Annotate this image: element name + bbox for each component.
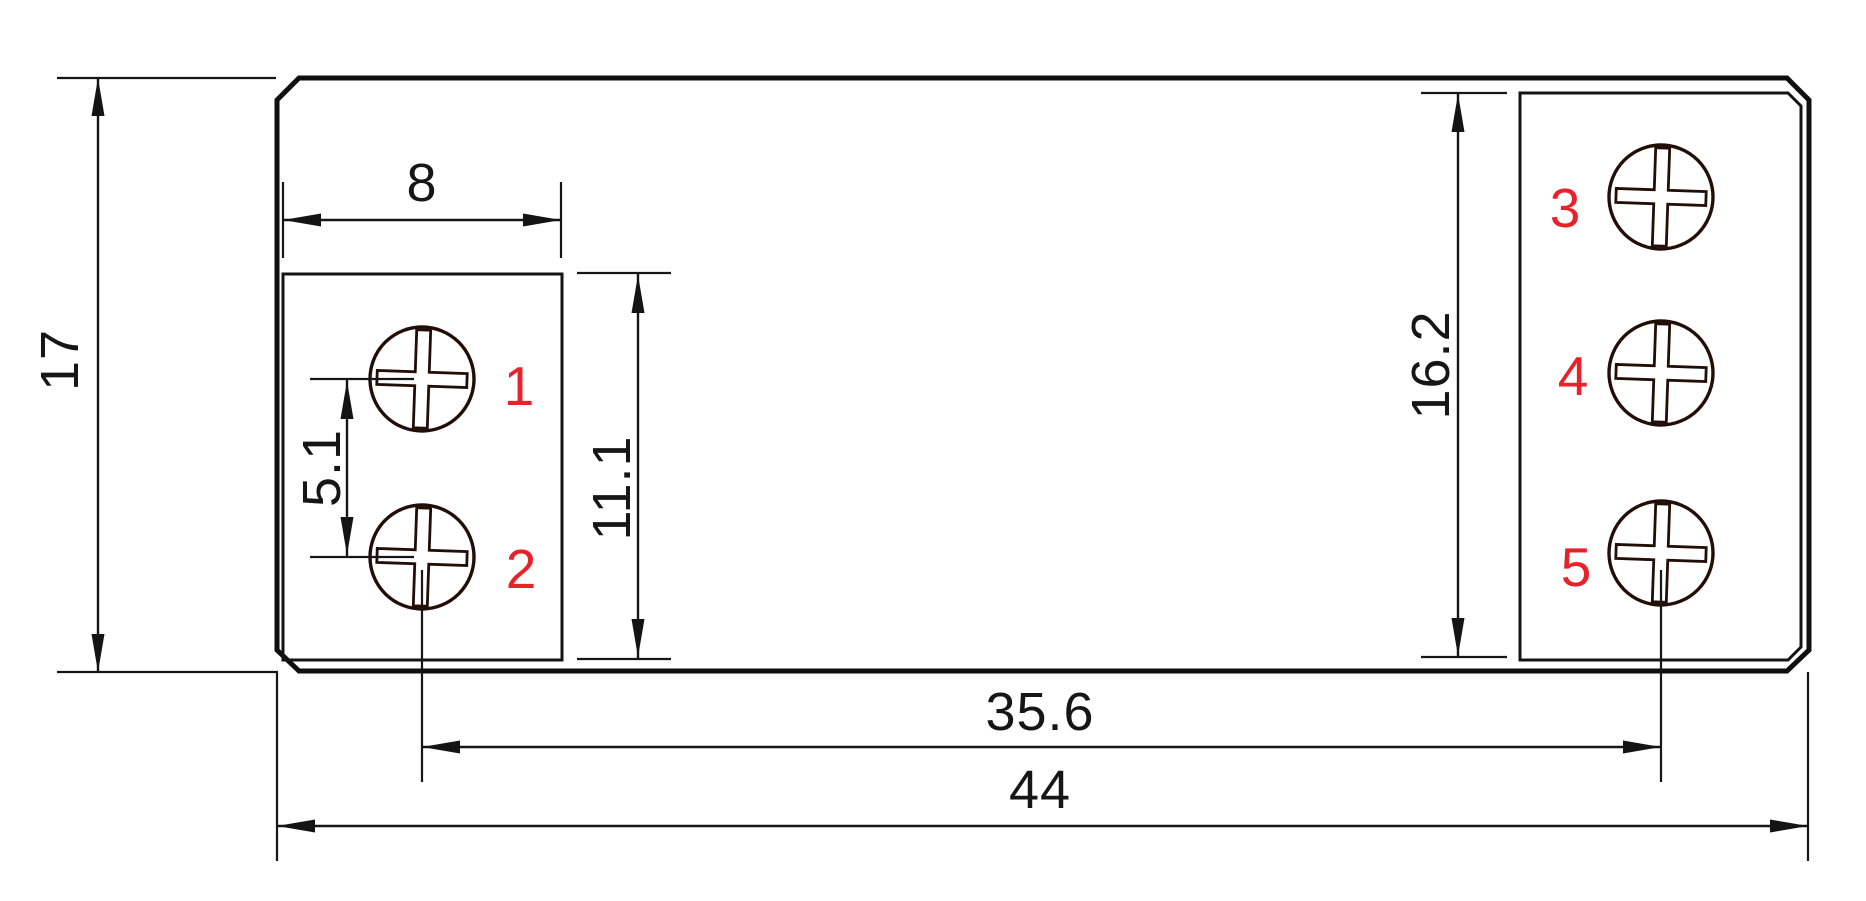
- screws: [370, 145, 1713, 609]
- dim162-arrow-top: [1452, 94, 1465, 132]
- dim51-arrow-top: [341, 381, 354, 419]
- dim51-arrow-bottom: [341, 517, 354, 555]
- dim17-arrow-bottom: [92, 634, 105, 672]
- dim-overall-width-label: 44: [1009, 760, 1071, 820]
- dim356-arrow-right: [1623, 741, 1661, 754]
- drawing-svg: 8 17 5.1 11.1 16.2 35.6 44 1 2 3 4 5: [0, 0, 1866, 901]
- dim356-arrow-left: [422, 741, 460, 754]
- dim8-arrow-left: [283, 214, 321, 227]
- dim111-arrow-bottom: [632, 619, 645, 657]
- terminal-number-1: 1: [504, 355, 535, 417]
- dim-screw-columns-span-label: 35.6: [985, 682, 1094, 742]
- dim-left-terminal-height-label: 11.1: [582, 435, 642, 540]
- dim-overall-height-label: 17: [30, 329, 90, 391]
- phillips-screw-icon-3: [1609, 145, 1713, 249]
- dimension-labels: 8 17 5.1 11.1 16.2 35.6 44: [30, 153, 1461, 820]
- dim-left-terminal-width-label: 8: [406, 153, 437, 213]
- terminal-block-dimension-drawing: 8 17 5.1 11.1 16.2 35.6 44 1 2 3 4 5: [0, 0, 1866, 901]
- dim44-arrow-right: [1770, 820, 1808, 833]
- dim162-arrow-bottom: [1452, 618, 1465, 656]
- dim-right-terminal-height-label: 16.2: [1401, 310, 1461, 419]
- dim44-arrow-left: [277, 820, 315, 833]
- terminal-number-5: 5: [1561, 536, 1592, 598]
- terminal-number-3: 3: [1550, 177, 1581, 239]
- terminal-number-4: 4: [1558, 345, 1589, 407]
- dim8-arrow-right: [523, 214, 561, 227]
- dim17-arrow-top: [92, 78, 105, 116]
- dim-left-screw-pitch-label: 5.1: [292, 429, 352, 507]
- phillips-screw-icon-4: [1609, 321, 1713, 425]
- dim111-arrow-top: [632, 275, 645, 313]
- terminal-number-2: 2: [506, 538, 537, 600]
